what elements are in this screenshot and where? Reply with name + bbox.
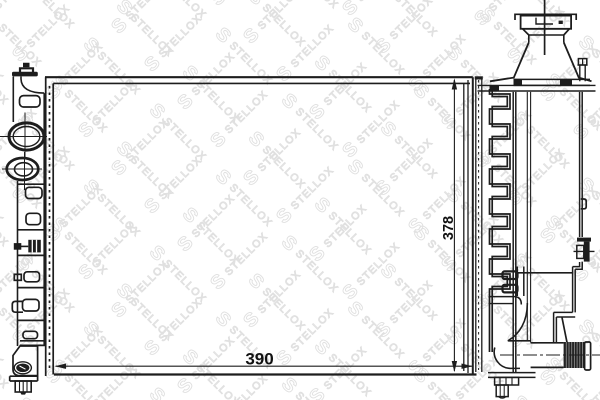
svg-text:378: 378 (441, 216, 457, 240)
svg-text:390: 390 (245, 350, 273, 369)
